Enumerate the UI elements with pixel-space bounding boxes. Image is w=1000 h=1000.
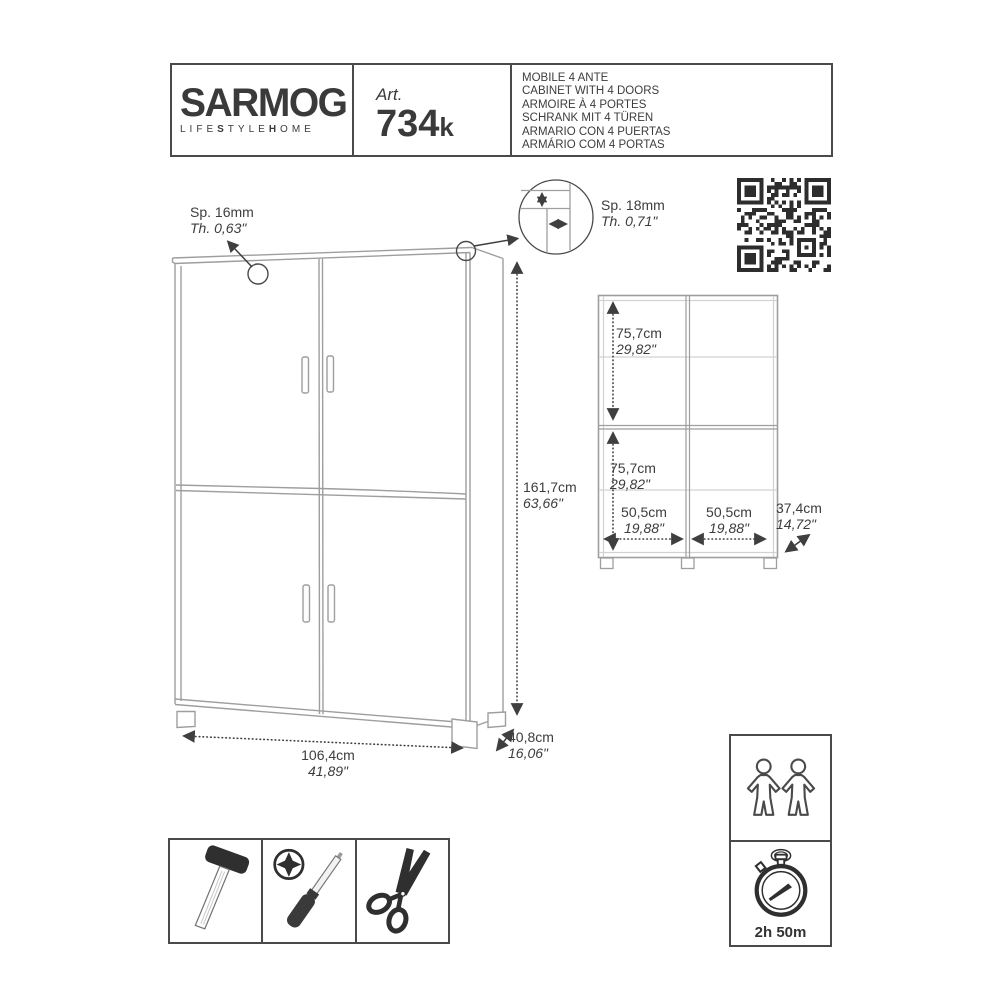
lower-inner-height-label: 75,7cm 29,82" — [610, 461, 656, 492]
upper-inner-height-metric: 75,7cm — [616, 326, 662, 342]
brand-logo: SARMOG — [180, 85, 352, 122]
assembly-time-label: 2h 50m — [755, 924, 807, 941]
door-thickness-callout-circle — [248, 264, 268, 284]
product-name-es: ARMARIO CON 4 PUERTAS — [522, 126, 831, 139]
front-view-foot-left — [601, 558, 614, 569]
tool-screwdriver — [261, 840, 354, 942]
two-people-icon — [735, 753, 827, 823]
door-thickness-leader-arrow — [228, 242, 252, 268]
height-metric: 161,7cm — [523, 480, 577, 496]
article-cell: Art. 734k — [354, 65, 512, 155]
tool-hammer — [170, 840, 261, 942]
width-metric: 106,4cm — [233, 748, 423, 764]
width-imperial: 41,89" — [233, 764, 423, 780]
panel-thickness-label: Sp. 18mm Th. 0,71" — [601, 198, 665, 229]
door-thickness-label: Sp. 16mm Th. 0,63" — [190, 205, 254, 236]
scissors-icon — [359, 842, 445, 940]
left-inner-width-metric: 50,5cm — [601, 505, 687, 521]
door-thickness-metric: Sp. 16mm — [190, 205, 254, 221]
spec-sheet: SARMOG LIFESTYLEHOME Art. 734k MOBILE 4 … — [0, 0, 1000, 1000]
article-number-suffix: k — [439, 112, 453, 142]
panel-thickness-callout-circle — [457, 242, 476, 261]
left-inner-width-imperial: 19,88" — [601, 521, 687, 537]
panel-thickness-metric: Sp. 18mm — [601, 198, 665, 214]
lower-inner-height-imperial: 29,82" — [610, 477, 656, 493]
overall-dimension-arrows — [184, 263, 517, 750]
depth-metric: 40,8cm — [508, 730, 554, 746]
inner-depth-metric: 37,4cm — [776, 501, 822, 517]
left-inner-width-label: 50,5cm 19,88" — [601, 505, 687, 536]
assembly-info: 2h 50m — [729, 734, 832, 947]
assembly-time: 2h 50m — [731, 840, 830, 946]
panel-thickness-leader-arrow — [474, 239, 518, 247]
brand-cell: SARMOG LIFESTYLEHOME — [172, 65, 354, 155]
article-number-value: 734 — [376, 103, 439, 145]
detail-magnifier-circle — [519, 180, 593, 254]
height-label: 161,7cm 63,66" — [523, 480, 577, 511]
cabinet-foot-rear — [488, 712, 506, 728]
depth-imperial: 16,06" — [508, 746, 554, 762]
door-thickness-imperial: Th. 0,63" — [190, 221, 254, 237]
width-label: 106,4cm 41,89" — [233, 748, 423, 779]
inner-depth-imperial: 14,72" — [776, 517, 822, 533]
product-name-it: MOBILE 4 ANTE — [522, 72, 831, 85]
height-imperial: 63,66" — [523, 496, 577, 512]
thickness-detail — [228, 180, 593, 284]
panel-thickness-imperial: Th. 0,71" — [601, 214, 665, 230]
right-inner-width-metric: 50,5cm — [688, 505, 770, 521]
product-name-fr: ARMOIRE À 4 PORTES — [522, 99, 831, 112]
product-name-pt: ARMÁRIO COM 4 PORTAS — [522, 139, 831, 152]
people-required — [731, 736, 830, 840]
cabinet-drawing — [173, 248, 506, 749]
qr-code — [737, 178, 831, 272]
right-inner-width-label: 50,5cm 19,88" — [688, 505, 770, 536]
upper-inner-height-imperial: 29,82" — [616, 342, 662, 358]
header-table: SARMOG LIFESTYLEHOME Art. 734k MOBILE 4 … — [170, 63, 833, 157]
right-inner-width-imperial: 19,88" — [688, 521, 770, 537]
depth-label: 40,8cm 16,06" — [508, 730, 554, 761]
lower-inner-height-metric: 75,7cm — [610, 461, 656, 477]
tools-required — [168, 838, 450, 944]
hammer-icon — [173, 842, 259, 940]
tool-scissors — [355, 840, 448, 942]
product-name-de: SCHRANK MIT 4 TÜREN — [522, 112, 831, 125]
front-view-foot-center — [682, 558, 695, 569]
stopwatch-icon — [737, 845, 825, 923]
article-label: Art. — [376, 85, 510, 105]
phillips-screwdriver-icon — [266, 842, 352, 940]
product-name-en: CABINET WITH 4 DOORS — [522, 85, 831, 98]
product-names-cell: MOBILE 4 ANTE CABINET WITH 4 DOORS ARMOI… — [512, 65, 831, 155]
cabinet-foot-right — [452, 719, 477, 749]
inner-depth-arrow — [786, 535, 809, 552]
cabinet-foot-left — [177, 712, 195, 728]
front-view-foot-right — [764, 558, 777, 569]
upper-inner-height-label: 75,7cm 29,82" — [616, 326, 662, 357]
article-number: 734k — [376, 105, 510, 146]
inner-depth-label: 37,4cm 14,72" — [776, 501, 822, 532]
